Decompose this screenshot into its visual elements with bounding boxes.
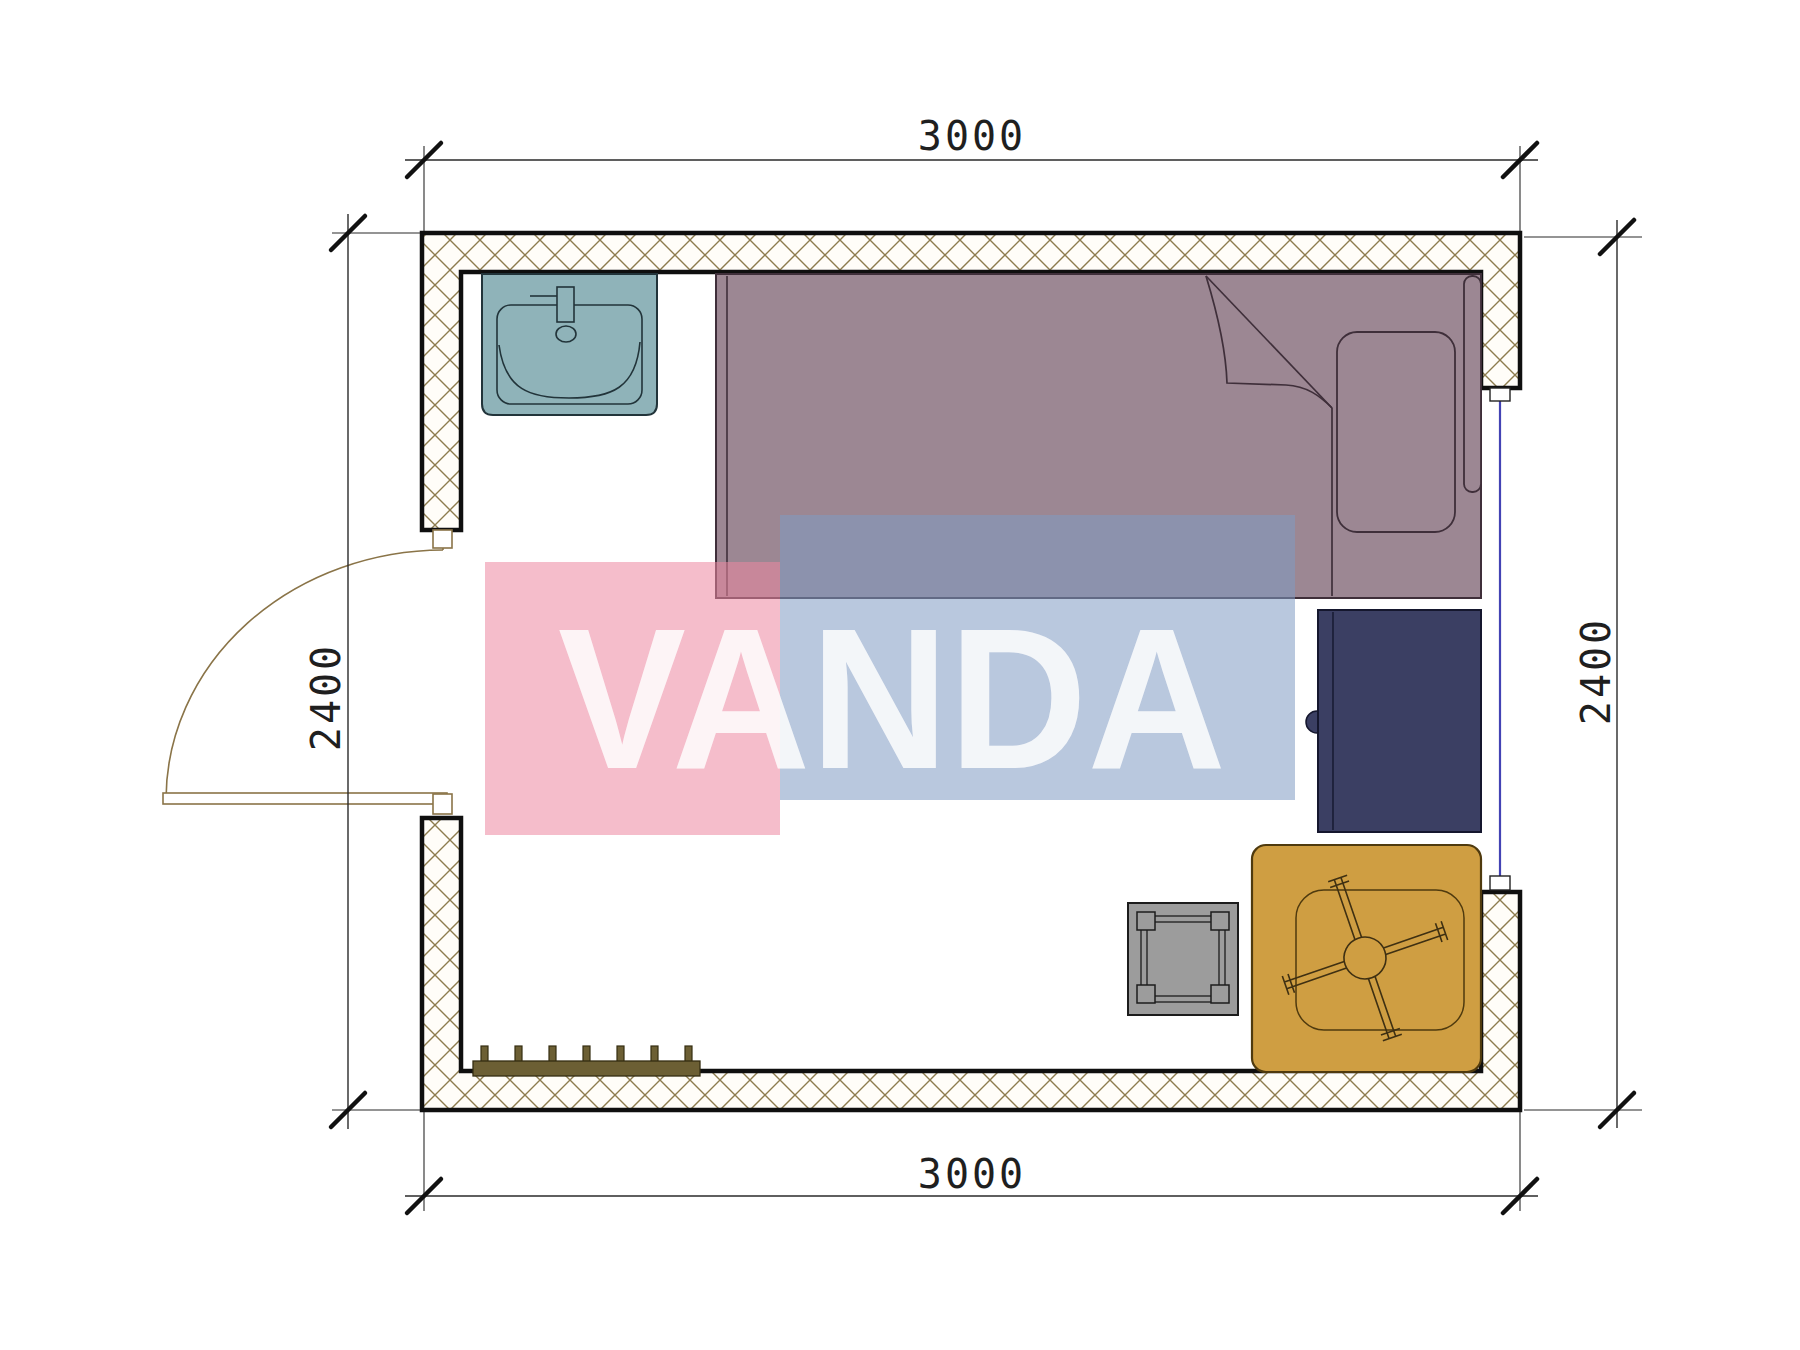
dim-label-bottom: 3000	[918, 1151, 1026, 1197]
sink-faucet	[557, 287, 574, 322]
coat-rack-peg	[583, 1046, 590, 1062]
sink	[482, 274, 657, 415]
window-jamb-bottom	[1490, 876, 1510, 890]
floor-plan-drawing: VANDA 3000 3000	[0, 0, 1800, 1350]
floor-plan-canvas: VANDA 3000 3000	[0, 0, 1800, 1350]
table-with-chair	[1252, 845, 1481, 1072]
door-jamb-top	[433, 530, 452, 548]
coat-rack-peg	[481, 1046, 488, 1062]
door-jamb-bottom	[433, 794, 452, 814]
window-jamb-top	[1490, 388, 1510, 401]
coat-rack-peg	[651, 1046, 658, 1062]
coat-rack-bar	[473, 1061, 700, 1076]
door-leaf	[163, 793, 447, 804]
stool-leg	[1137, 985, 1155, 1003]
stool-leg	[1211, 985, 1229, 1003]
desk-top	[1318, 610, 1481, 832]
dim-label-left: 2400	[303, 643, 349, 751]
stool	[1128, 903, 1238, 1015]
watermark-text: VANDA	[558, 587, 1226, 810]
dim-label-right: 2400	[1573, 617, 1619, 725]
watermark: VANDA	[485, 515, 1295, 835]
dim-label-top: 3000	[918, 113, 1026, 159]
coat-rack-peg	[515, 1046, 522, 1062]
stool-leg	[1211, 912, 1229, 930]
coat-rack-peg	[617, 1046, 624, 1062]
bed-side-bolster	[1464, 276, 1481, 492]
stool-leg	[1137, 912, 1155, 930]
coat-rack-peg	[685, 1046, 692, 1062]
desk	[1306, 610, 1481, 832]
coat-rack-peg	[549, 1046, 556, 1062]
